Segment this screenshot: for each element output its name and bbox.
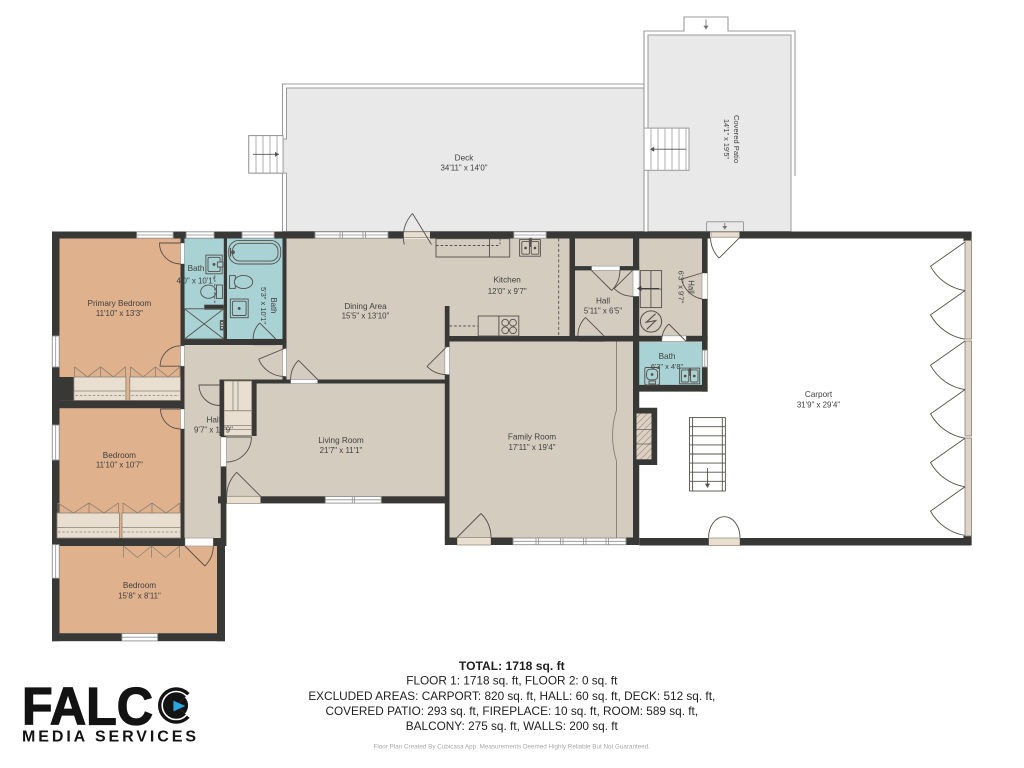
svg-text:Family Room: Family Room [508, 433, 556, 442]
svg-text:Bedroom: Bedroom [123, 581, 156, 590]
svg-text:Floor Plan Created By Cubicasa: Floor Plan Created By Cubicasa App. Meas… [374, 744, 651, 751]
svg-text:21'7" x 11'1": 21'7" x 11'1" [320, 446, 363, 455]
svg-text:6'3" x 9'7": 6'3" x 9'7" [677, 271, 686, 304]
svg-text:EXCLUDED AREAS: CARPORT: 820 s: EXCLUDED AREAS: CARPORT: 820 sq. ft, HAL… [308, 689, 715, 703]
svg-text:11'10" x 13'3": 11'10" x 13'3" [96, 309, 143, 318]
svg-text:6'3" x 4'8": 6'3" x 4'8" [651, 362, 684, 371]
svg-text:Hall: Hall [596, 296, 610, 305]
svg-text:Primary Bedroom: Primary Bedroom [88, 299, 152, 308]
svg-text:12'0" x 9'7": 12'0" x 9'7" [488, 287, 527, 296]
svg-text:5'3" x 10'1": 5'3" x 10'1" [259, 287, 268, 324]
svg-text:9'7" x 18'9": 9'7" x 18'9" [194, 425, 233, 434]
svg-text:34'11" x 14'0": 34'11" x 14'0" [440, 164, 487, 173]
svg-text:Carport: Carport [805, 390, 833, 399]
svg-text:TOTAL: 1718 sq. ft: TOTAL: 1718 sq. ft [459, 659, 565, 673]
svg-text:COVERED PATIO: 293 sq. ft, FIR: COVERED PATIO: 293 sq. ft, FIREPLACE: 10… [325, 704, 698, 718]
svg-text:14'1" x 19'5": 14'1" x 19'5" [722, 119, 731, 159]
svg-text:FLOOR 1: 1718 sq. ft, FLOOR 2:: FLOOR 1: 1718 sq. ft, FLOOR 2: 0 sq. ft [406, 673, 618, 687]
svg-text:Bath: Bath [269, 297, 278, 313]
svg-text:Bath: Bath [659, 352, 676, 361]
svg-text:31'9" x 29'4": 31'9" x 29'4" [797, 400, 840, 409]
svg-text:BALCONY: 275 sq. ft, WALLS: 20: BALCONY: 275 sq. ft, WALLS: 200 sq. ft [406, 719, 619, 733]
svg-text:15'5" x 13'10": 15'5" x 13'10" [342, 312, 390, 321]
svg-text:Dining Area: Dining Area [344, 302, 387, 311]
svg-text:Covered Patio: Covered Patio [732, 115, 741, 163]
svg-text:Bedroom: Bedroom [103, 451, 136, 460]
svg-text:11'10" x 10'7": 11'10" x 10'7" [96, 460, 143, 469]
svg-text:Hall: Hall [206, 415, 220, 424]
svg-text:5'11" x 6'5": 5'11" x 6'5" [584, 307, 622, 316]
svg-text:17'11" x 19'4": 17'11" x 19'4" [508, 443, 555, 452]
svg-text:4'0" x 10'1": 4'0" x 10'1" [177, 276, 216, 285]
svg-text:Kitchen: Kitchen [494, 276, 522, 285]
svg-text:Bath: Bath [188, 264, 205, 273]
svg-text:Living Room: Living Room [318, 436, 364, 445]
svg-text:15'8" x 8'11": 15'8" x 8'11" [118, 592, 161, 601]
svg-text:Deck: Deck [455, 154, 475, 163]
svg-text:Hall: Hall [687, 280, 696, 294]
